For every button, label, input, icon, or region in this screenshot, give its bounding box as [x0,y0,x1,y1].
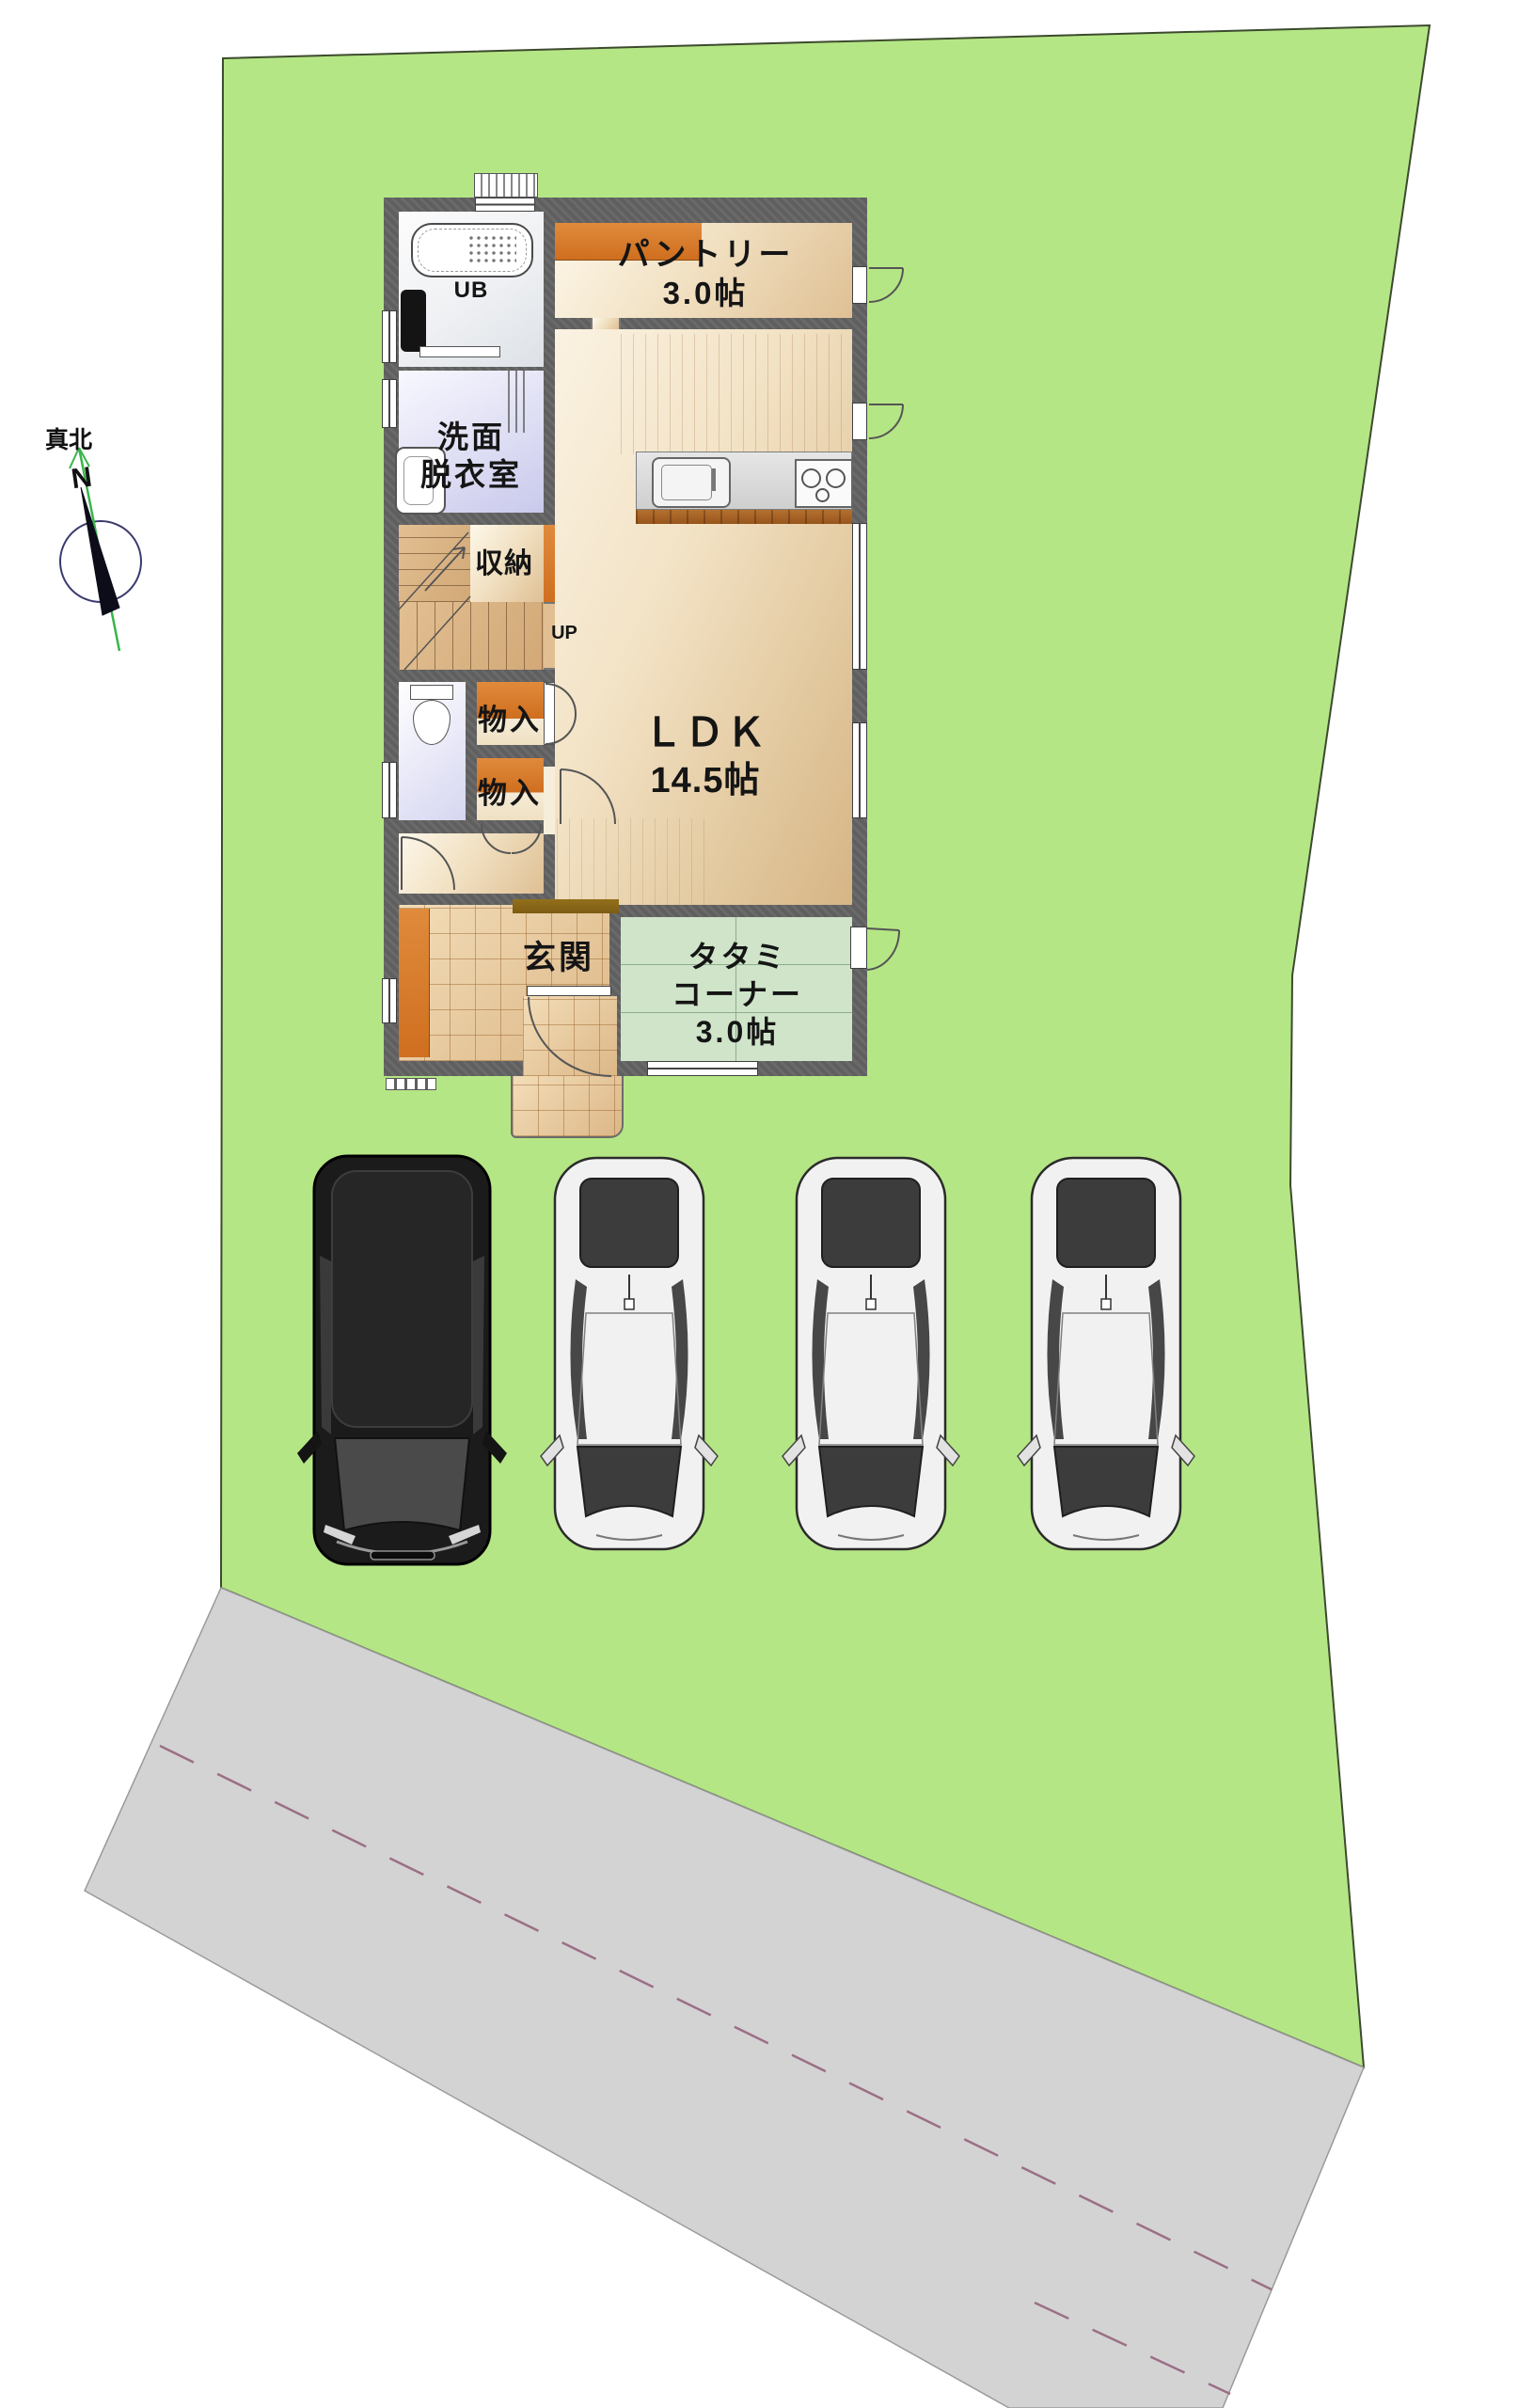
window-entrance-left [382,978,397,1023]
bathtub-dots [467,234,516,264]
closet-door-opening [544,682,555,745]
site-plan-canvas: 真北 N [0,0,1518,2408]
toilet-tank [410,685,453,700]
storage-door-strip [544,525,555,602]
door-tatami-right [850,927,867,969]
window-washroom-left [382,379,397,428]
foundation-vents [386,1078,436,1090]
label-tatami-3: 3.0帖 [696,1008,780,1052]
window-toilet-left [382,762,397,818]
entrance-porch [511,1076,624,1138]
shoe-cabinet [399,909,430,1057]
stairs-lower-flight [399,602,544,670]
label-ldk-name: ＬＤＫ [643,701,767,758]
label-up: UP [551,623,577,644]
label-storage: 収納 [475,540,533,581]
entrance-door-leaf [527,986,611,996]
window-ldk-right-1 [852,523,867,670]
door-kitchen-right [852,403,867,440]
label-closet-upper: 物入 [478,696,542,738]
kitchen-counter-wood-base [636,510,852,524]
bathtub [411,223,533,277]
ldk-floor-stripes-bottom [557,818,712,905]
kitchen-counter [636,451,852,510]
hallway [399,833,544,894]
label-ub: UB [454,277,489,304]
stairs-upper-flight [399,525,470,602]
ldk-floor-stripes-top [621,334,851,454]
house-floor-plan: パントリー 3.0帖 UB 洗面 脱衣室 収納 ＬＤＫ 14.5帖 UP 物入 … [384,198,867,1076]
ldk-door-opening [544,767,555,834]
kitchen-stove [795,459,853,508]
label-closet-lower: 物入 [478,769,542,812]
door-pantry-right [852,266,867,304]
bath-shelf [419,346,500,357]
water-heater [401,290,426,352]
true-north-label: 真北 [45,421,92,455]
car-white-sedan-3 [1018,1158,1194,1549]
window-tatami-bottom [647,1061,758,1076]
faucet-icon [712,468,716,491]
window-top-wall [475,198,535,212]
washroom-sliding-door [508,371,529,433]
car-black-minivan [297,1156,507,1564]
pantry-doorway [591,318,621,329]
north-letter: N [70,462,94,497]
kitchen-sink [652,457,731,508]
top-deck [474,173,538,198]
label-washroom-2: 脱衣室 [420,450,522,495]
car-white-sedan-2 [783,1158,959,1549]
entrance-door-recess [523,996,617,1076]
window-ldk-right-2 [852,722,867,818]
label-entrance: 玄関 [523,931,594,979]
entrance-step-strip [513,899,619,913]
car-white-sedan-1 [541,1158,718,1549]
label-ldk-size: 14.5帖 [651,751,761,802]
window-ub-left [382,310,397,363]
label-pantry-size: 3.0帖 [663,268,749,313]
